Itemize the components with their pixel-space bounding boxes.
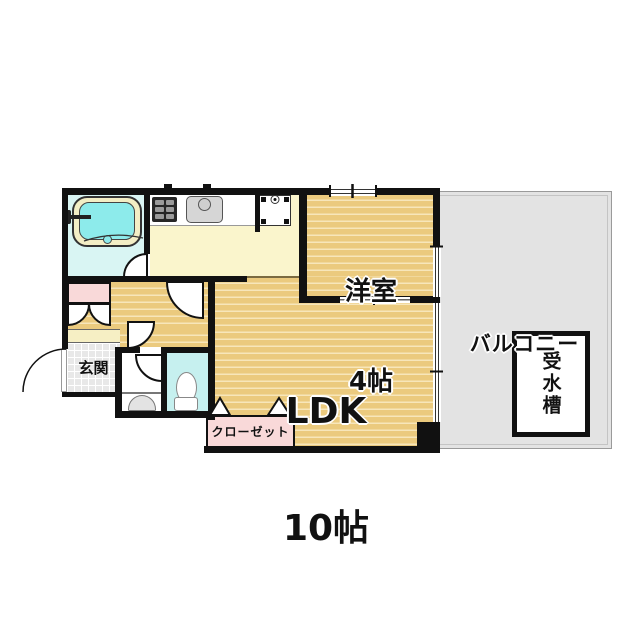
burner bbox=[166, 214, 175, 219]
wall-washroom-top-r bbox=[161, 347, 210, 353]
burner bbox=[166, 207, 175, 212]
wall-genkan-bottom bbox=[62, 392, 120, 397]
wall-top bbox=[62, 188, 440, 195]
washer-tap-icon bbox=[271, 195, 280, 204]
ldk-label: LDK 10帖 bbox=[241, 314, 411, 626]
sink-faucet bbox=[198, 198, 211, 211]
corridor-floor-lower bbox=[120, 329, 208, 347]
burner bbox=[155, 214, 164, 219]
pan-corner bbox=[261, 219, 266, 224]
wall-ldk-divider bbox=[208, 276, 215, 420]
front-door-arc bbox=[23, 349, 66, 392]
floor-plan: 受水槽 玄関 クローゼット bbox=[0, 0, 640, 640]
bathtub-drain bbox=[103, 235, 112, 244]
ldk-size: 10帖 bbox=[241, 509, 411, 548]
wall-washroom-top-l bbox=[115, 347, 140, 353]
ldk-name: LDK bbox=[241, 392, 411, 431]
yoshitsu-name: 洋室 bbox=[310, 277, 432, 307]
pan-corner bbox=[261, 197, 266, 202]
balcony-text: バルコニー bbox=[437, 328, 612, 358]
toilet-tank bbox=[174, 397, 198, 411]
wall-bath-right bbox=[144, 194, 150, 254]
wall-washroom-divider bbox=[161, 352, 167, 412]
washer-pan bbox=[259, 195, 291, 226]
pan-corner bbox=[284, 219, 289, 224]
pan-corner bbox=[284, 197, 289, 202]
wall-left bbox=[62, 188, 68, 349]
genkan-step bbox=[67, 329, 120, 343]
balcony-label: バルコニー bbox=[437, 280, 612, 406]
kitchen-vent-tick bbox=[203, 184, 211, 189]
wall-washroom-left bbox=[115, 347, 122, 417]
wall-washer-stub bbox=[255, 194, 260, 232]
burner bbox=[155, 200, 164, 205]
wall-right-top bbox=[433, 188, 440, 246]
shoe-cabinet bbox=[67, 282, 111, 304]
burner bbox=[166, 200, 175, 205]
genkan-label: 玄関 bbox=[78, 357, 108, 378]
wall-washroom-bottom bbox=[115, 411, 210, 418]
stove bbox=[152, 197, 177, 222]
kitchen-vent-tick bbox=[164, 184, 172, 189]
kitchen-ldk-boundary bbox=[247, 276, 299, 278]
wall-yoshitsu-left bbox=[299, 194, 307, 303]
wall-under-kitchen bbox=[62, 276, 247, 282]
burner bbox=[155, 207, 164, 212]
genkan-tile: 玄関 bbox=[67, 343, 120, 392]
front-door-threshold bbox=[61, 349, 67, 392]
window-yoshitsu-top bbox=[329, 187, 377, 197]
washstand-counter bbox=[121, 392, 161, 394]
